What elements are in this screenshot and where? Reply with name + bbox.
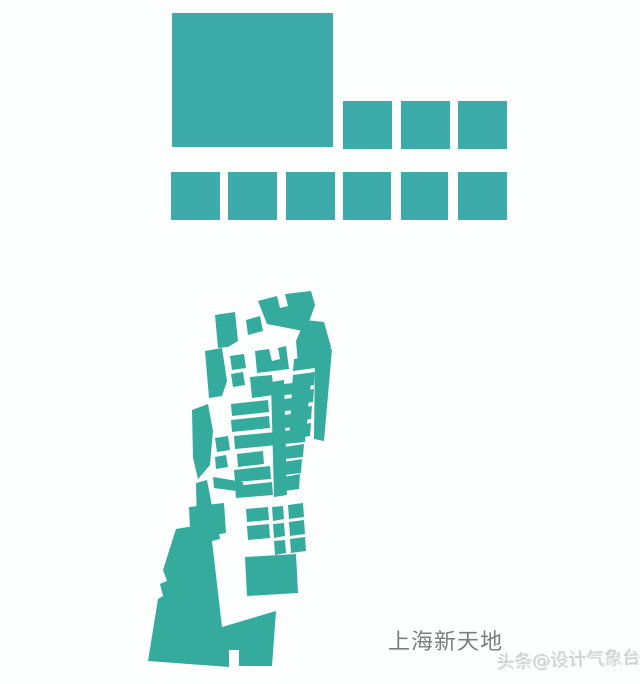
map-footprint-polygon	[284, 444, 304, 459]
map-footprint-polygon	[215, 455, 228, 469]
poster: 上海新天地 头条@设计气象台	[0, 0, 640, 684]
map-footprint-polygon	[246, 316, 263, 335]
map-footprint-polygon	[230, 354, 246, 370]
site-name-label: 上海新天地	[388, 624, 503, 656]
map-footprint-polygon	[247, 524, 270, 540]
map-footprint-polygon	[272, 506, 284, 521]
watermark-text: 头条@设计气象台	[497, 644, 640, 675]
map-footprint-polygon	[273, 523, 285, 538]
map-footprint-polygon	[314, 349, 332, 441]
massing-block-small	[171, 172, 220, 220]
map-footprint-polygon	[215, 312, 238, 348]
map-footprint-polygon	[284, 412, 308, 428]
massing-block-small	[343, 172, 391, 220]
map-footprint-polygon	[289, 520, 305, 536]
map-footprint-polygon	[205, 348, 227, 398]
massing-block-small	[458, 101, 507, 149]
map-footprint-polygon	[274, 540, 286, 555]
figure-ground-diagram	[0, 0, 640, 684]
map-footprint-polygon	[234, 466, 271, 482]
map-footprint-polygon	[246, 507, 269, 522]
map-footprint-polygon	[231, 416, 270, 432]
massing-block-small	[401, 172, 448, 220]
map-footprint-polygon	[293, 356, 316, 371]
map-footprint-polygon	[284, 396, 309, 411]
map-footprint-polygon	[250, 375, 274, 398]
map-footprint-polygon	[231, 400, 269, 416]
map-footprint-polygon	[284, 428, 306, 444]
map-footprint-polygon	[255, 346, 289, 373]
massing-block-large	[172, 13, 333, 147]
map-footprint-polygon	[215, 436, 230, 452]
map-footprint-polygon	[237, 451, 264, 467]
map-footprint-polygon	[245, 554, 298, 596]
map-footprint-polygon	[284, 459, 302, 475]
map-footprint-polygon	[234, 432, 277, 449]
map-footprint-polygon	[231, 372, 245, 387]
massing-block-small	[228, 172, 277, 220]
map-footprint-polygon	[288, 503, 304, 519]
map-footprint-polygon	[192, 404, 213, 479]
massing-block-small	[458, 172, 507, 220]
massing-block-small	[401, 101, 450, 149]
massing-block-small	[286, 172, 335, 220]
map-footprint-polygon	[290, 537, 306, 553]
map-footprint-polygon	[284, 381, 311, 395]
massing-block-small	[343, 101, 392, 149]
